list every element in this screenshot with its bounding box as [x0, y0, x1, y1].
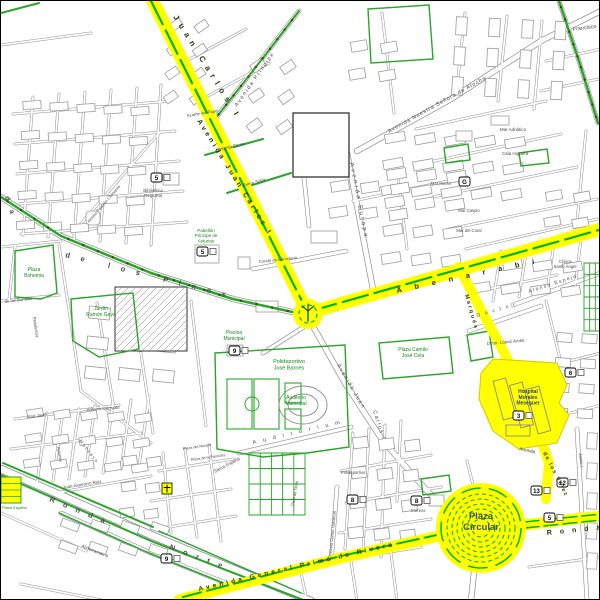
building: [97, 225, 116, 234]
poi-icon-annex: [578, 370, 584, 376]
building: [553, 51, 565, 70]
building: [16, 220, 35, 229]
poi-icon-annex: [544, 488, 550, 494]
building: [489, 18, 501, 37]
city-map[interactable]: 5593688131259GJuan Carlos IAvenida Juan …: [1, 1, 600, 600]
building: [50, 102, 69, 111]
tree-dot: [560, 6, 562, 8]
building: [77, 103, 96, 112]
building: [144, 508, 159, 519]
tree-dot: [595, 116, 597, 118]
poi-icon-annex: [242, 348, 248, 354]
building: [72, 193, 91, 202]
poi-icon-annex: [164, 175, 170, 181]
tree-dot: [255, 303, 257, 305]
street-label: Cala Higuera: [502, 151, 529, 156]
tree-dot: [291, 19, 293, 21]
building: [48, 132, 67, 141]
building: [104, 105, 123, 114]
street-label: Correos: [411, 508, 426, 513]
poi-label: PolideportivoJosé Barnés: [273, 359, 305, 371]
street-label: Plaza España: [2, 505, 27, 510]
poi-label: BibliotecaRegional: [143, 188, 163, 198]
tree-dot: [283, 29, 285, 31]
building: [579, 384, 595, 394]
building: [429, 495, 444, 506]
street-label: Polideportivo: [341, 470, 366, 475]
poi-icon-annex: [210, 249, 216, 255]
building: [587, 493, 598, 510]
tree-dot: [568, 31, 570, 33]
building: [122, 455, 137, 466]
building: [293, 113, 349, 177]
building: [311, 231, 337, 243]
tree-dot: [261, 57, 263, 59]
poi-icon-annex: [570, 480, 576, 486]
tree-dot: [591, 103, 593, 105]
tree-dot: [218, 113, 220, 115]
poi-icon-annex: [526, 413, 532, 419]
building: [121, 481, 136, 492]
building: [352, 436, 368, 449]
street: [471, 572, 474, 600]
poi-label: AuditorioMunicipal: [285, 395, 306, 407]
poi-label: Plaza CamiloJosé Cela: [398, 347, 428, 359]
building: [101, 165, 120, 174]
building: [238, 257, 250, 269]
building: [587, 433, 598, 450]
building: [491, 116, 509, 125]
building: [557, 332, 573, 342]
building: [74, 163, 93, 172]
building: [47, 162, 66, 171]
building: [21, 130, 40, 139]
poi-label: PiscinaMunicipal: [223, 330, 244, 342]
tree-dot: [112, 256, 114, 258]
poi-icon-number: 13: [533, 489, 540, 495]
tree-dot: [20, 209, 22, 211]
building: [115, 287, 187, 351]
tree-dot: [240, 300, 242, 302]
building: [587, 553, 598, 570]
tree-dot: [97, 250, 99, 252]
tree-dot: [276, 38, 278, 40]
poi-icon-annex: [424, 498, 430, 504]
tree-dot: [287, 310, 289, 312]
poi-icon-annex: [557, 515, 563, 521]
street-label: Mar Caspio: [458, 208, 480, 213]
building: [520, 50, 532, 69]
street-label: Mar Menor: [431, 181, 452, 186]
tree-dot: [33, 218, 35, 220]
building: [403, 469, 419, 482]
street-label: Mar Adriático: [500, 127, 527, 132]
tree-dot: [271, 306, 273, 308]
tree-dot: [564, 18, 566, 20]
building: [23, 100, 42, 109]
building: [75, 133, 94, 142]
building: [129, 136, 148, 145]
tree-dot: [572, 43, 574, 45]
tree-dot: [269, 48, 271, 50]
building: [348, 526, 364, 539]
tree-dot: [82, 244, 84, 246]
map-viewport[interactable]: 5593688131259GJuan Carlos IAvenida Juan …: [0, 0, 600, 600]
building: [70, 223, 89, 232]
building: [518, 80, 530, 99]
tree-dot: [576, 55, 578, 57]
building: [522, 20, 534, 39]
tree-dot: [580, 66, 582, 68]
tree-dot: [240, 85, 242, 87]
poi-icon-annex: [174, 556, 180, 562]
building: [124, 226, 143, 235]
building: [145, 482, 160, 493]
building: [375, 498, 391, 511]
tree-dot: [67, 238, 69, 240]
street-label: Mar del Coral: [456, 228, 481, 233]
building: [20, 160, 39, 169]
tree-dot: [247, 75, 249, 77]
poi-label: HospitalMoralesMeseguer: [516, 389, 539, 407]
building: [551, 81, 563, 100]
tree-dot: [584, 78, 586, 80]
building: [128, 166, 147, 175]
building: [377, 468, 393, 481]
building: [374, 528, 390, 541]
building: [84, 366, 106, 380]
building: [118, 367, 140, 381]
building: [45, 192, 64, 201]
building: [152, 369, 174, 383]
building: [582, 334, 598, 344]
building: [587, 463, 598, 480]
building: [580, 359, 596, 369]
building: [456, 131, 472, 141]
building: [126, 196, 145, 205]
building: [487, 48, 499, 67]
building: [18, 190, 37, 199]
building: [102, 135, 121, 144]
poi-icon-annex: [360, 497, 366, 503]
poi-icon-number: G: [462, 180, 467, 186]
tree-dot: [232, 94, 234, 96]
tree-dot: [255, 66, 257, 68]
tree-dot: [587, 91, 589, 93]
building: [131, 106, 150, 115]
building: [555, 21, 567, 40]
tree-dot: [47, 226, 49, 228]
building: [577, 409, 593, 419]
building: [404, 439, 420, 452]
building: [456, 17, 468, 36]
building: [86, 336, 108, 350]
building: [146, 456, 161, 467]
building: [454, 47, 466, 66]
